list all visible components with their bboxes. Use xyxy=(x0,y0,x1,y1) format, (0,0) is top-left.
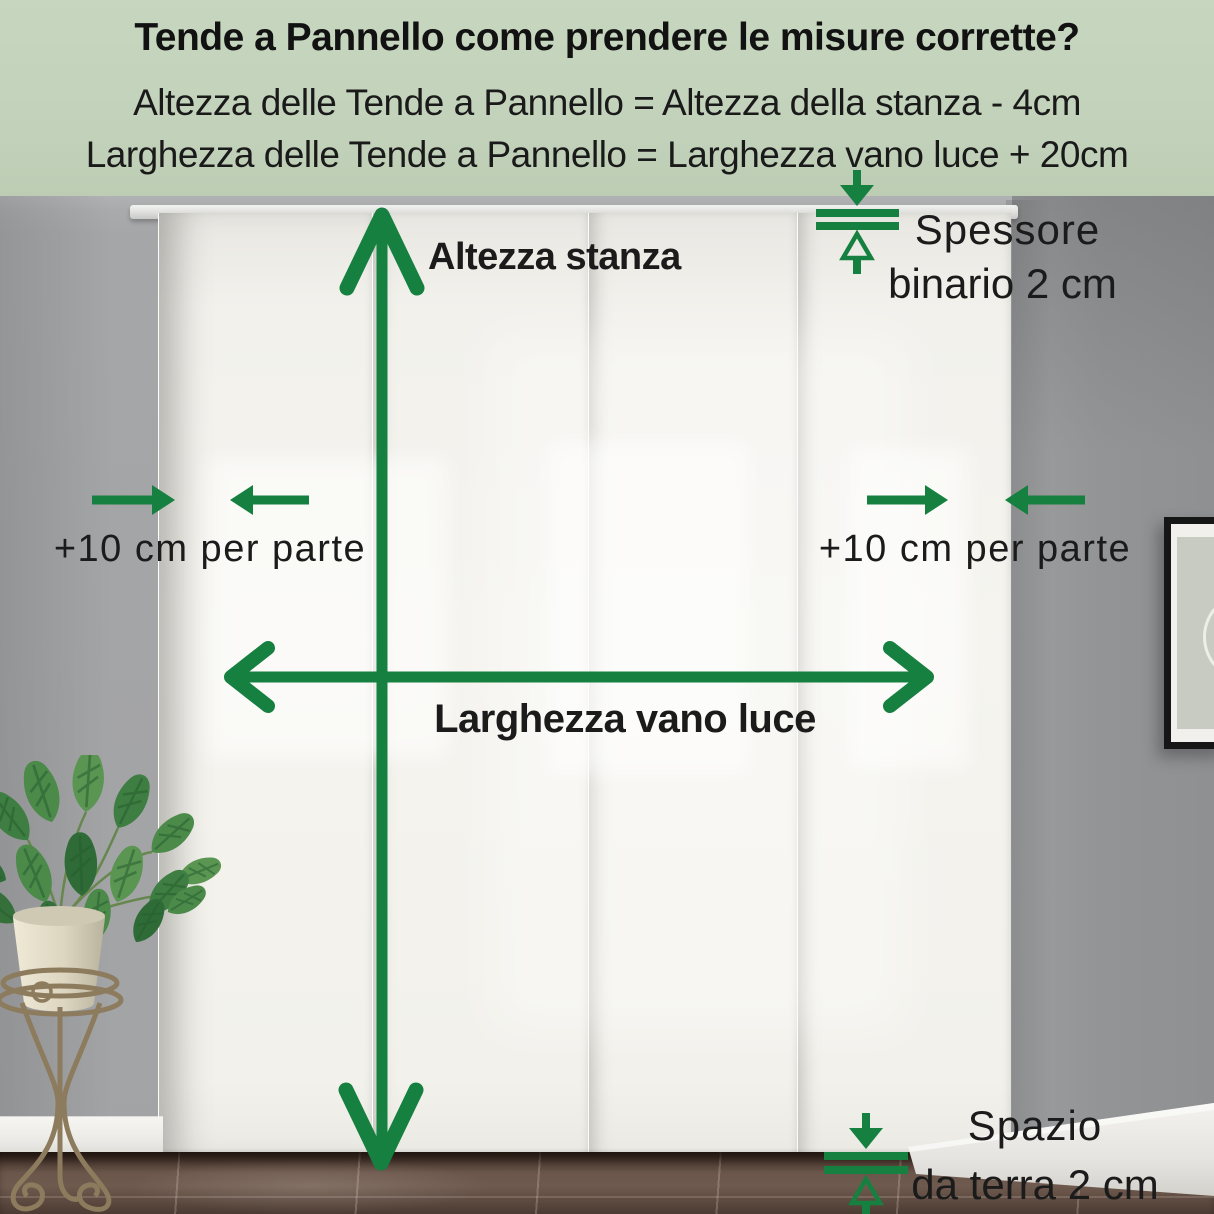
opening-width-label: Larghezza vano luce xyxy=(420,697,830,742)
track-thickness-label-line1: Spessore xyxy=(895,206,1120,254)
header-banner: Tende a Pannello come prendere le misure… xyxy=(0,0,1214,196)
side-allowance-left-label: +10 cm per parte xyxy=(30,528,390,571)
width-formula-text: Larghezza delle Tende a Pannello = Largh… xyxy=(0,134,1214,176)
floor-gap-label-line1: Spazio xyxy=(925,1102,1145,1150)
room-height-label: Altezza stanza xyxy=(428,236,681,279)
picture-art xyxy=(1177,537,1214,729)
wall-picture-frame xyxy=(1164,517,1214,749)
page-title: Tende a Pannello come prendere le misure… xyxy=(0,16,1214,60)
picture-circle-motif xyxy=(1203,592,1214,682)
side-allowance-right-label: +10 cm per parte xyxy=(795,528,1155,571)
infographic-canvas: Altezza stanza Larghezza vano luce +10 c… xyxy=(0,0,1214,1214)
height-formula-text: Altezza delle Tende a Pannello = Altezza… xyxy=(0,82,1214,124)
floor-gap-label-line2: da terra 2 cm xyxy=(895,1161,1175,1209)
track-thickness-label-line2: binario 2 cm xyxy=(870,260,1135,308)
potted-plant xyxy=(0,755,222,1214)
